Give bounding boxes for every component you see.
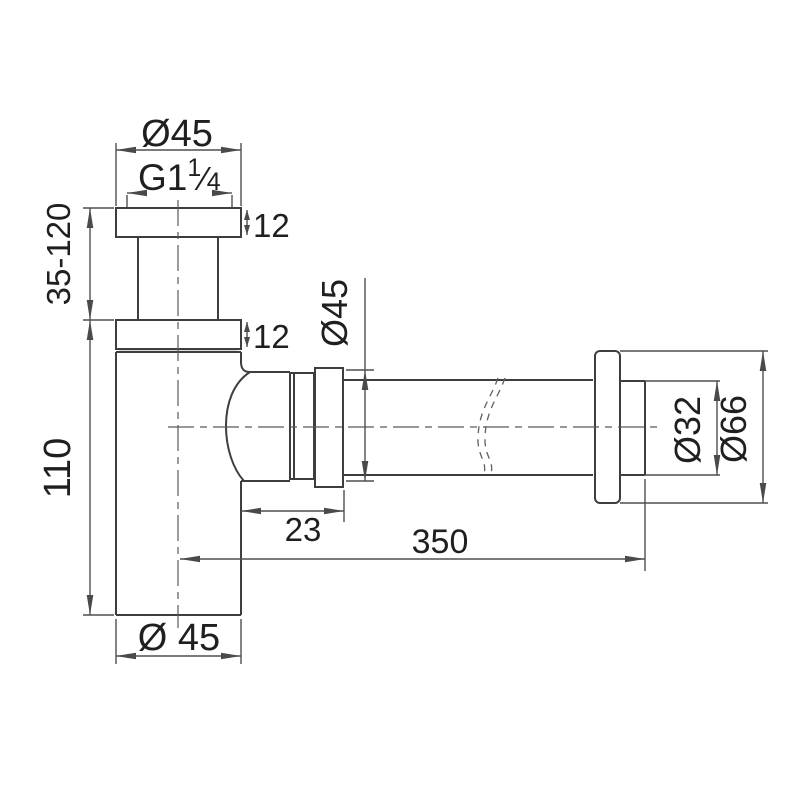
outlet-boss: [226, 362, 290, 481]
outlet-boss-top-edge: [241, 362, 290, 372]
outlet-offset-label: 23: [285, 511, 322, 548]
tail-pipe-diameter-label: Ø32: [667, 396, 708, 464]
inlet-flange-diameter-label: Ø45: [141, 113, 213, 155]
dim-tail-pipe-diameter: Ø32: [645, 381, 720, 475]
dim-outlet-offset: 23: [241, 490, 344, 548]
flange-thickness-top-label: 12: [253, 207, 290, 244]
dim-flange-thickness-top: 12: [247, 207, 290, 244]
flange-thickness-lower-label: 12: [253, 318, 290, 355]
dim-body-diameter: Ø 45: [116, 617, 241, 664]
riser-height-range-label: 35-120: [40, 203, 77, 306]
dim-thread-size: G11⁄4: [127, 154, 232, 207]
thread-denominator: 4: [207, 168, 221, 196]
thread-prefix: G1: [138, 157, 187, 198]
drawing-canvas: Ø45 G11⁄4 12 35-120 12 110 Ø 45 Ø: [0, 0, 800, 800]
body-diameter-label: Ø 45: [138, 617, 220, 659]
tail-pipe: [620, 381, 645, 475]
dim-body-height: 110: [37, 320, 114, 615]
body-height-label: 110: [37, 438, 79, 499]
thread-numerator: 1: [187, 154, 201, 182]
outlet-collar: [290, 373, 314, 479]
dim-riser-height-range: 35-120: [40, 203, 114, 320]
pipe-length-label: 350: [412, 523, 469, 561]
thread-size-label: G11⁄4: [138, 154, 221, 198]
dim-pipe-length: 350: [180, 479, 645, 571]
outlet-nut-diameter-label: Ø45: [314, 279, 355, 347]
wall-flange-diameter-label: Ø66: [713, 395, 754, 463]
bottle-trap-technical-drawing: Ø45 G11⁄4 12 35-120 12 110 Ø 45 Ø: [0, 0, 800, 800]
dim-flange-thickness-lower: 12: [247, 318, 290, 355]
